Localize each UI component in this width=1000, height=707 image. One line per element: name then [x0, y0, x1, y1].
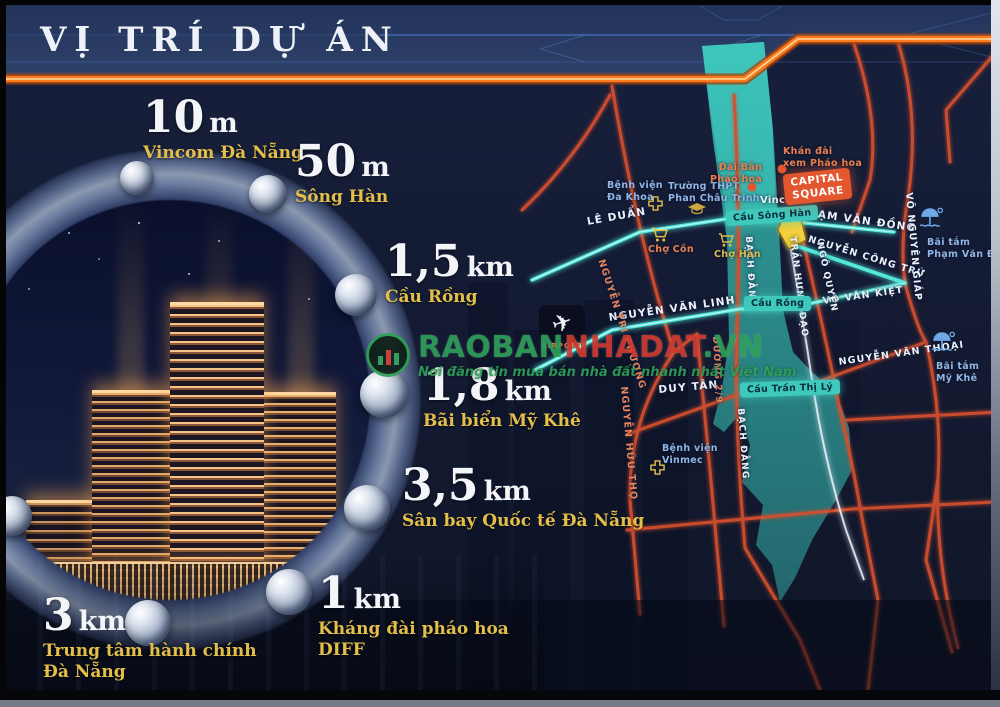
market-cart-icon — [718, 233, 734, 247]
ring-bubble — [266, 569, 312, 615]
poi-line: Phan Châu Trinh — [668, 193, 760, 205]
poi-khan-dai-xem-phao-hoa: Khán đài xem Pháo hoa — [783, 146, 862, 171]
distance-unit: m — [361, 152, 390, 183]
watermark-logo-icon — [366, 333, 410, 377]
ring-bubble — [249, 175, 287, 213]
poi-line: Pháo hoa — [710, 174, 762, 186]
ring-bubble — [344, 485, 390, 531]
distance-unit: km — [505, 376, 552, 407]
poi-line: Bệnh viện — [662, 443, 718, 455]
distance-place: Sông Hàn — [295, 187, 388, 207]
graduation-cap-icon — [688, 203, 706, 216]
brand-part: .VN — [702, 330, 763, 365]
brand-part: NHADAT — [564, 330, 702, 365]
distance-value: 1,5 — [385, 236, 462, 287]
poi-line: xem Pháo hoa — [783, 158, 862, 170]
distance-place: Kháng đài pháo hoa — [318, 619, 509, 640]
poi-dai-ban-phao-hoa: Đài Bắn Pháo hoa — [710, 162, 762, 187]
brand-part: RAOBAN — [418, 330, 564, 365]
distance-place: Sân bay Quốc tế Đà Nẵng — [402, 511, 644, 531]
distance-place: Trung tâm hành chính — [43, 641, 257, 662]
frame-edge-left — [0, 0, 6, 707]
poi-benh-vien-vinmec: Bệnh viện Vinmec — [662, 443, 718, 468]
market-cart-icon — [651, 227, 668, 242]
poi-bai-tam-pham-van-dong: Bãi tắm Phạm Văn Đồng — [927, 237, 1000, 262]
hospital-cross-icon — [650, 460, 665, 475]
distance-unit: km — [484, 476, 531, 507]
distance-unit: km — [354, 584, 401, 615]
distance-unit: m — [209, 108, 238, 139]
distance-value: 50 — [295, 136, 356, 187]
watermark: RAOBANNHADAT.VN Nơi đăng tin mua bán nhà… — [366, 333, 796, 380]
distance-unit: km — [467, 252, 514, 283]
poi-line: Bệnh viện — [607, 180, 663, 192]
frame-edge-bottom-strip — [0, 700, 1000, 707]
distance-place: Bãi biển Mỹ Khê — [423, 411, 581, 431]
distance-airport: 3,5km Sân bay Quốc tế Đà Nẵng — [402, 464, 644, 532]
hospital-cross-icon — [648, 196, 663, 211]
distance-place: Đà Nẵng — [43, 662, 257, 683]
page-title: VỊ TRÍ DỰ ÁN — [40, 20, 400, 60]
ring-bubble — [335, 274, 377, 316]
frame-edge-top — [0, 0, 1000, 5]
distance-song-han: 50m Sông Hàn — [295, 140, 390, 208]
beach-umbrella-icon — [918, 206, 944, 230]
ring-bubble — [120, 161, 154, 195]
poster: VỊ TRÍ DỰ ÁN 10m Vincom Đà Nẵng 50m Sông… — [0, 0, 1000, 707]
distance-place: Cầu Rồng — [385, 287, 478, 307]
poi-line: Bãi tắm — [936, 361, 979, 373]
distance-place: DIFF — [318, 640, 509, 661]
poi-line: Khán đài — [783, 146, 862, 158]
poi-cho-han: Chợ Hàn — [714, 249, 761, 261]
poi-line: Mỹ Khê — [936, 373, 979, 385]
watermark-brand: RAOBANNHADAT.VN — [418, 333, 796, 363]
distance-value: 3,5 — [402, 460, 479, 511]
poi-line: Vinmec — [662, 455, 718, 467]
poi-cho-con: Chợ Cồn — [648, 244, 694, 256]
bridge-cau-rong: Cầu Rồng — [744, 296, 811, 311]
distance-admin-center: 3km Trung tâm hành chính Đà Nẵng — [43, 594, 257, 684]
beach-umbrella-icon — [930, 330, 956, 354]
distance-cau-rong: 1,5km Cầu Rồng — [385, 240, 514, 308]
distance-vincom: 10m Vincom Đà Nẵng — [143, 96, 303, 164]
poi-bai-tam-my-khe: Bãi tắm Mỹ Khê — [936, 361, 979, 386]
frame-edge-bottom — [0, 690, 1000, 700]
distance-value: 3 — [43, 590, 74, 641]
poi-line: Bãi tắm — [927, 237, 1000, 249]
distance-value: 10 — [143, 92, 204, 143]
poi-line: Đài Bắn — [710, 162, 762, 174]
poi-line: Phạm Văn Đồng — [927, 249, 1000, 261]
distance-unit: km — [79, 606, 126, 637]
frame-edge-right — [991, 0, 1000, 707]
watermark-tagline: Nơi đăng tin mua bán nhà đất nhanh nhất … — [418, 365, 796, 380]
distance-place: Vincom Đà Nẵng — [143, 143, 303, 163]
distance-diff: 1km Kháng đài pháo hoa DIFF — [318, 572, 509, 662]
distance-value: 1 — [318, 568, 349, 619]
